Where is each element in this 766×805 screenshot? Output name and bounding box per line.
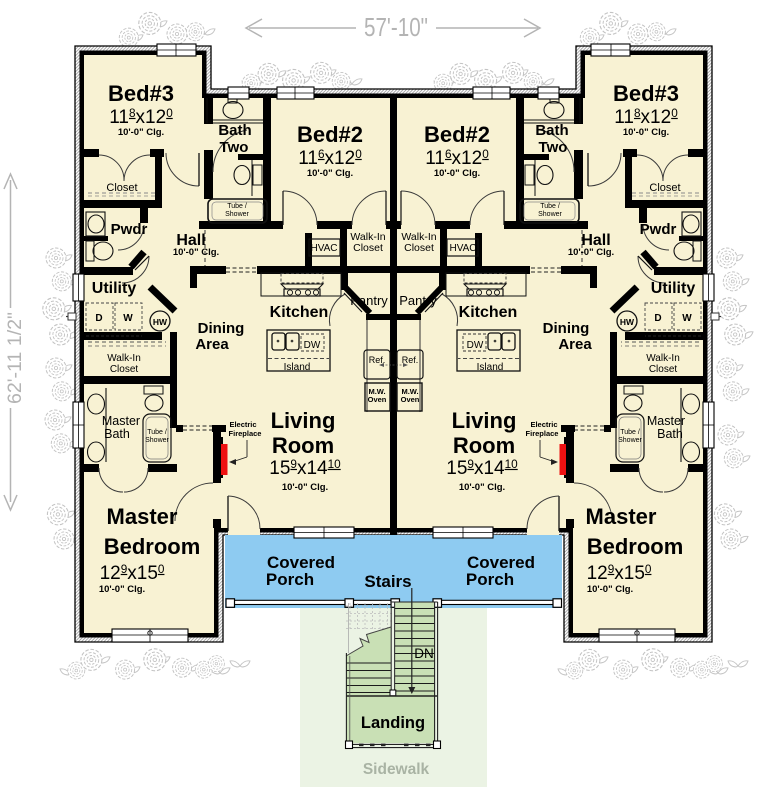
svg-text:Shower: Shower: [538, 211, 562, 218]
svg-text:Shower: Shower: [145, 437, 169, 444]
svg-text:Master: Master: [586, 504, 657, 529]
svg-text:116x120: 116x120: [298, 148, 362, 169]
svg-text:10'-0" Clg.: 10'-0" Clg.: [173, 247, 219, 258]
svg-text:Master: Master: [647, 414, 685, 428]
svg-text:Oven: Oven: [368, 395, 387, 404]
svg-text:Area: Area: [195, 336, 229, 353]
svg-text:10'-0" Clg.: 10'-0" Clg.: [99, 584, 145, 595]
svg-text:Bed#3: Bed#3: [108, 81, 174, 106]
svg-text:Closet: Closet: [106, 182, 137, 194]
svg-text:129x150: 129x150: [100, 563, 165, 584]
svg-text:10'-0" Clg.: 10'-0" Clg.: [118, 127, 164, 138]
svg-text:Pwdr: Pwdr: [111, 221, 148, 238]
svg-text:Bath: Bath: [218, 122, 251, 139]
svg-text:Oven: Oven: [401, 395, 420, 404]
svg-text:Closet: Closet: [110, 364, 139, 375]
svg-text:Room: Room: [272, 433, 334, 458]
svg-text:116x120: 116x120: [425, 148, 489, 169]
svg-text:HW: HW: [620, 317, 635, 327]
svg-text:HVAC: HVAC: [449, 243, 476, 254]
svg-text:Master: Master: [107, 504, 178, 529]
svg-text:Pantry: Pantry: [350, 293, 388, 308]
svg-text:Electric: Electric: [530, 420, 557, 429]
svg-text:Shower: Shower: [225, 211, 249, 218]
svg-text:Bed#2: Bed#2: [424, 122, 490, 147]
svg-text:Living: Living: [271, 408, 336, 433]
svg-text:Two: Two: [220, 139, 249, 156]
svg-text:Closet: Closet: [649, 364, 678, 375]
svg-text:Tube /: Tube /: [620, 429, 640, 436]
svg-text:Island: Island: [477, 362, 504, 373]
svg-text:DN: DN: [414, 646, 434, 661]
svg-text:Kitchen: Kitchen: [270, 304, 329, 321]
svg-text:10'-0" Clg.: 10'-0" Clg.: [568, 247, 614, 258]
svg-text:Bedroom: Bedroom: [104, 534, 201, 559]
svg-text:Dining: Dining: [198, 320, 245, 337]
svg-text:Room: Room: [453, 433, 515, 458]
svg-text:Tube /: Tube /: [227, 203, 247, 210]
svg-text:62'-11 1/2": 62'-11 1/2": [5, 312, 26, 404]
svg-text:Kitchen: Kitchen: [459, 304, 518, 321]
svg-text:Tube /: Tube /: [147, 429, 167, 436]
svg-text:Walk-In: Walk-In: [646, 353, 680, 364]
svg-text:Bed#2: Bed#2: [297, 122, 363, 147]
svg-text:D: D: [95, 313, 102, 324]
svg-text:HVAC: HVAC: [310, 243, 337, 254]
svg-text:Bath: Bath: [104, 427, 130, 441]
svg-text:Stairs: Stairs: [364, 572, 411, 591]
svg-text:Walk-In: Walk-In: [107, 353, 141, 364]
svg-text:Dining: Dining: [543, 320, 590, 337]
svg-text:Landing: Landing: [361, 714, 425, 732]
svg-text:Shower: Shower: [618, 437, 642, 444]
svg-text:10'-0" Clg.: 10'-0" Clg.: [587, 584, 633, 595]
svg-text:Utility: Utility: [651, 280, 696, 297]
svg-text:HW: HW: [153, 317, 168, 327]
svg-text:W: W: [123, 313, 133, 324]
svg-text:118x120: 118x120: [109, 107, 173, 128]
svg-text:Fireplace: Fireplace: [229, 429, 262, 438]
svg-text:DW: DW: [304, 340, 321, 351]
svg-text:Electric: Electric: [229, 420, 256, 429]
svg-text:Master: Master: [102, 414, 140, 428]
svg-text:Living: Living: [452, 408, 517, 433]
svg-text:Utility: Utility: [92, 280, 137, 297]
svg-text:Bath: Bath: [535, 122, 568, 139]
svg-text:10'-0" Clg.: 10'-0" Clg.: [459, 482, 505, 493]
svg-text:Porch: Porch: [466, 570, 514, 589]
svg-text:Fireplace: Fireplace: [526, 429, 559, 438]
svg-text:129x150: 129x150: [587, 563, 652, 584]
svg-text:Two: Two: [539, 139, 568, 156]
svg-text:Bath: Bath: [657, 427, 683, 441]
svg-text:Island: Island: [284, 362, 311, 373]
svg-text:Bedroom: Bedroom: [587, 534, 684, 559]
svg-text:Sidewalk: Sidewalk: [363, 761, 430, 778]
svg-text:118x120: 118x120: [614, 107, 678, 128]
svg-text:Pwdr: Pwdr: [640, 221, 677, 238]
svg-text:10'-0" Clg.: 10'-0" Clg.: [623, 127, 669, 138]
svg-text:Tube /: Tube /: [540, 203, 560, 210]
svg-text:10'-0" Clg.: 10'-0" Clg.: [307, 168, 353, 179]
svg-text:Closet: Closet: [404, 242, 434, 254]
svg-text:57'-10": 57'-10": [364, 12, 428, 42]
svg-text:D: D: [654, 313, 661, 324]
svg-text:Closet: Closet: [353, 242, 383, 254]
svg-text:Closet: Closet: [649, 182, 680, 194]
svg-text:Area: Area: [558, 336, 592, 353]
svg-text:Porch: Porch: [266, 570, 314, 589]
svg-text:Bed#3: Bed#3: [613, 81, 679, 106]
svg-text:10'-0" Clg.: 10'-0" Clg.: [434, 168, 480, 179]
svg-text:W: W: [682, 313, 692, 324]
svg-text:DW: DW: [467, 340, 484, 351]
svg-text:Pantry: Pantry: [399, 293, 437, 308]
svg-text:10'-0" Clg.: 10'-0" Clg.: [282, 482, 328, 493]
svg-text:Ref.: Ref.: [402, 355, 419, 365]
